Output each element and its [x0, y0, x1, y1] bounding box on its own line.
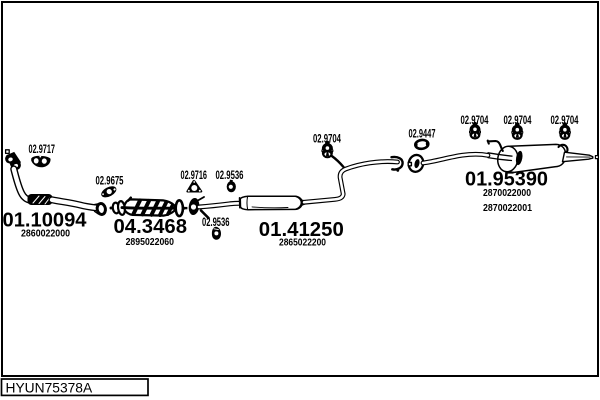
- svg-text:2895022060: 2895022060: [126, 236, 175, 248]
- svg-text:02.9447: 02.9447: [409, 127, 436, 141]
- svg-text:2860022000: 2860022000: [21, 228, 70, 240]
- svg-text:HYUN75378A: HYUN75378A: [6, 380, 93, 395]
- svg-text:02.9717: 02.9717: [29, 142, 56, 156]
- svg-text:04.3468: 04.3468: [114, 216, 188, 238]
- svg-text:02.9675: 02.9675: [96, 173, 124, 187]
- svg-text:02.9536: 02.9536: [202, 215, 230, 229]
- svg-text:02.9536: 02.9536: [216, 168, 244, 182]
- svg-text:2865022200: 2865022200: [279, 237, 326, 249]
- svg-text:02.9704: 02.9704: [461, 113, 489, 127]
- svg-text:02.9704: 02.9704: [504, 113, 532, 127]
- svg-text:02.9704: 02.9704: [313, 132, 341, 146]
- svg-text:02.9716: 02.9716: [181, 168, 208, 182]
- svg-text:2870022000: 2870022000: [483, 187, 531, 199]
- svg-text:02.9704: 02.9704: [551, 113, 579, 127]
- svg-text:2870022001: 2870022001: [483, 202, 532, 214]
